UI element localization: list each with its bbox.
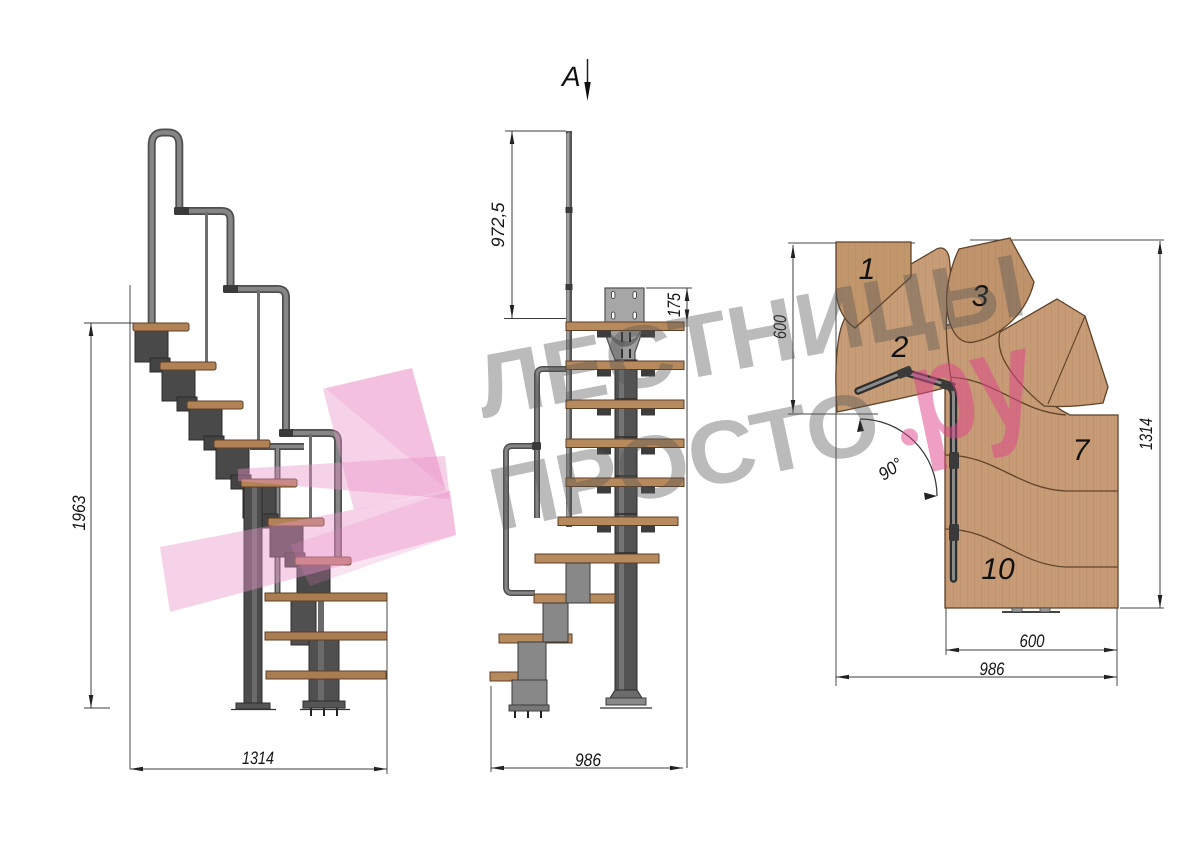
svg-text:7: 7 — [1073, 434, 1091, 467]
svg-text:1963: 1963 — [69, 496, 89, 531]
svg-text:10: 10 — [981, 553, 1015, 586]
svg-text:1314: 1314 — [242, 748, 274, 768]
svg-text:1314: 1314 — [1136, 418, 1156, 450]
svg-text:972,5: 972,5 — [488, 202, 508, 248]
svg-text:A: A — [560, 61, 581, 92]
svg-text:986: 986 — [575, 750, 602, 770]
svg-text:600: 600 — [1020, 631, 1045, 651]
svg-text:986: 986 — [980, 659, 1006, 679]
